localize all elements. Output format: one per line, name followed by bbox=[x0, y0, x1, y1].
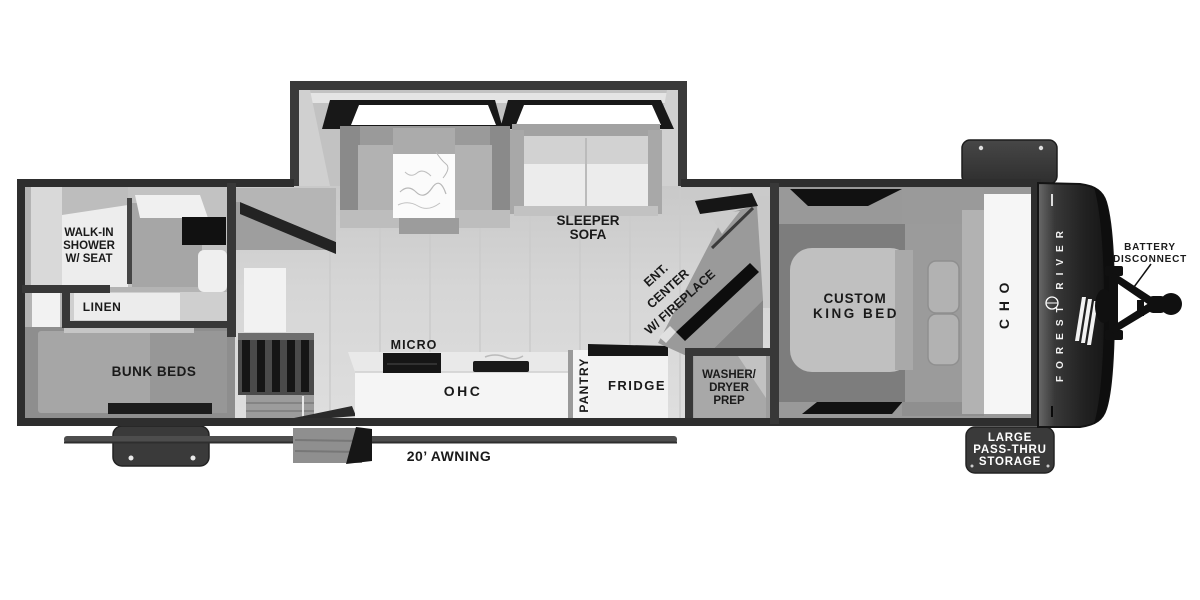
svg-text:LINEN: LINEN bbox=[83, 300, 122, 314]
svg-text:PREP: PREP bbox=[713, 395, 745, 407]
svg-text:H: H bbox=[996, 301, 1012, 311]
svg-text:FRIDGE: FRIDGE bbox=[608, 378, 666, 393]
svg-text:WASHER/: WASHER/ bbox=[702, 369, 756, 381]
svg-text:LARGE: LARGE bbox=[988, 432, 1032, 444]
svg-text:CUSTOM: CUSTOM bbox=[823, 291, 886, 306]
svg-text:FOREST RIVER: FOREST RIVER bbox=[1055, 224, 1066, 382]
svg-text:KING BED: KING BED bbox=[813, 306, 899, 321]
svg-text:BUNK BEDS: BUNK BEDS bbox=[112, 364, 197, 379]
svg-text:PANTRY: PANTRY bbox=[577, 357, 591, 412]
svg-text:OHC: OHC bbox=[444, 383, 483, 399]
svg-text:W/ SEAT: W/ SEAT bbox=[65, 253, 112, 265]
svg-text:20’ AWNING: 20’ AWNING bbox=[407, 448, 492, 464]
svg-text:WALK-IN: WALK-IN bbox=[64, 227, 113, 239]
svg-text:SOFA: SOFA bbox=[570, 227, 607, 242]
svg-text:SHOWER: SHOWER bbox=[63, 240, 115, 252]
svg-text:BATTERY: BATTERY bbox=[1124, 242, 1176, 253]
svg-text:STORAGE: STORAGE bbox=[979, 456, 1041, 468]
svg-text:MICRO: MICRO bbox=[391, 338, 438, 352]
svg-text:PASS-THRU: PASS-THRU bbox=[973, 444, 1046, 456]
svg-text:DISCONNECT: DISCONNECT bbox=[1113, 254, 1187, 265]
svg-text:O: O bbox=[996, 282, 1012, 293]
svg-text:SLEEPER: SLEEPER bbox=[556, 213, 619, 228]
svg-text:C: C bbox=[996, 319, 1012, 329]
svg-text:DRYER: DRYER bbox=[709, 382, 750, 394]
